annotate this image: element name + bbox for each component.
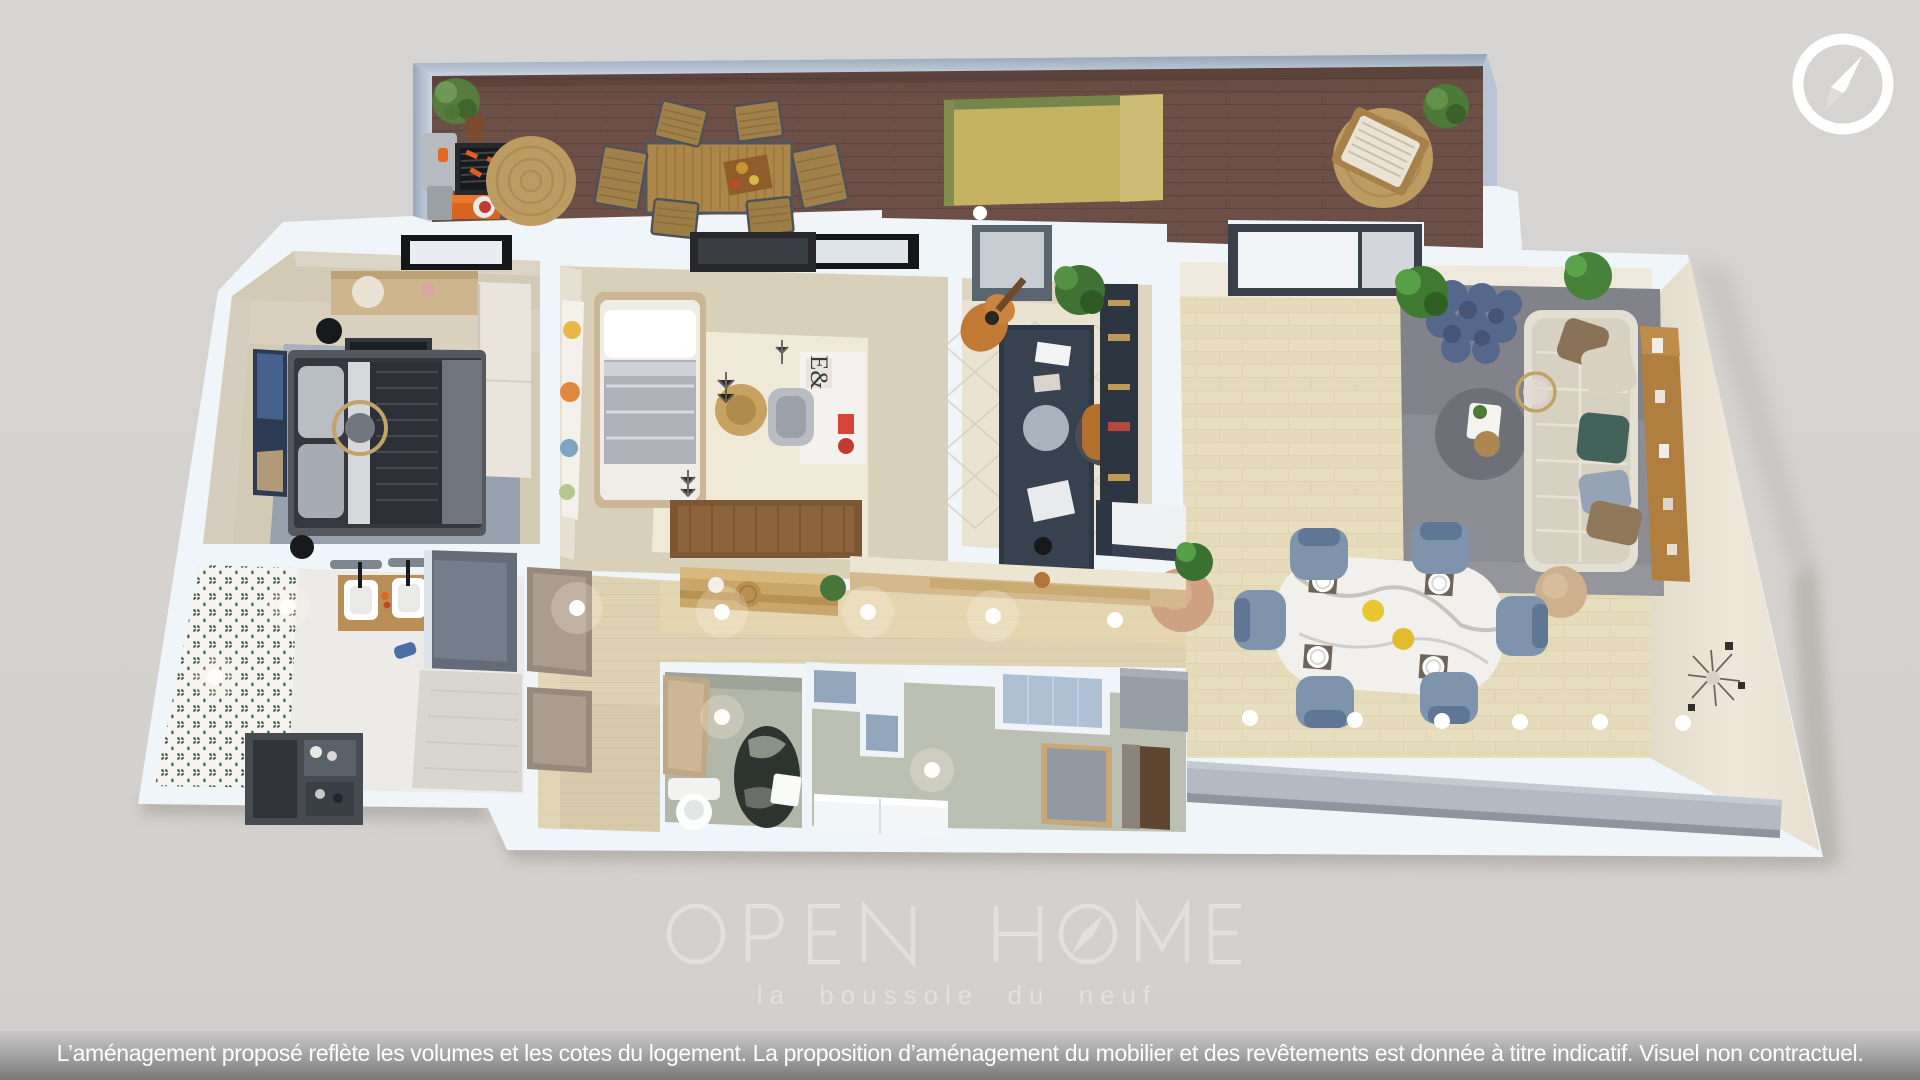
svg-text:E&: E& (805, 355, 832, 390)
svg-text:L’aménagement proposé reflète: L’aménagement proposé reflète les volume… (57, 1040, 1864, 1066)
svg-text:la boussole du neuf: la boussole du neuf (757, 980, 1158, 1010)
